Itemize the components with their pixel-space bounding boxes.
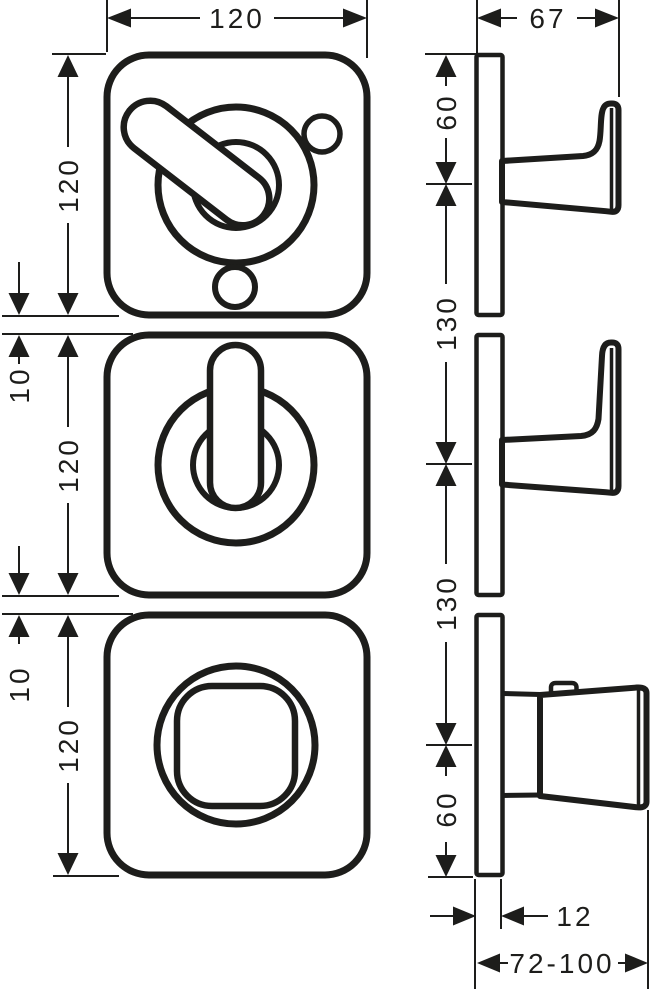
arrowhead	[625, 954, 648, 973]
arrowhead	[58, 55, 79, 77]
side-plate-2	[477, 335, 503, 595]
dim-label-offset-bottom: 60	[431, 790, 462, 827]
technical-drawing: 120 67 120 120 120 10 10 60 130 130 60 1…	[0, 0, 650, 989]
side-plate-1	[477, 55, 503, 315]
arrowhead	[58, 293, 79, 315]
arrowhead	[58, 573, 79, 595]
dim-label-installation-depth: 72-100	[509, 948, 614, 979]
arrowhead	[453, 907, 476, 926]
arrowhead	[501, 907, 524, 926]
side-plate-3	[477, 615, 503, 875]
arrowhead	[436, 162, 457, 184]
dim-label-plate1-height: 120	[53, 157, 84, 213]
arrowhead	[477, 9, 501, 28]
front-view-module-2	[107, 335, 367, 595]
front-view-module-1	[107, 55, 367, 315]
arrowhead	[9, 293, 30, 315]
dim-label-gap2: 10	[4, 665, 35, 702]
arrowhead	[58, 335, 79, 357]
drawing-canvas: 120 67 120 120 120 10 10 60 130 130 60 1…	[0, 0, 650, 989]
arrowhead	[436, 745, 457, 767]
function-dot-bottom	[215, 267, 255, 307]
lever-handle-side-2	[502, 343, 619, 493]
dim-label-plate2-height: 120	[53, 437, 84, 493]
side-view-module-1	[477, 55, 619, 315]
arrowhead	[107, 9, 131, 28]
dim-label-offset-top: 60	[431, 93, 462, 130]
dim-label-gap1: 10	[4, 366, 35, 403]
function-dot-top	[304, 116, 340, 152]
dim-label-front-width: 120	[209, 3, 265, 34]
arrowhead	[343, 9, 367, 28]
thermostat-knob-side	[540, 687, 647, 807]
lever-handle-front-2	[210, 345, 261, 508]
arrowhead	[9, 615, 30, 637]
arrowhead	[436, 464, 457, 486]
lever-handle-side-1	[502, 104, 619, 212]
dim-label-spacing-2: 130	[431, 575, 462, 631]
arrowhead	[9, 573, 30, 595]
side-view-module-3	[477, 615, 647, 875]
arrowhead	[595, 9, 619, 28]
arrowhead	[58, 615, 79, 637]
arrowhead	[9, 335, 30, 357]
dim-label-spacing-1: 130	[431, 295, 462, 351]
arrowhead	[436, 855, 457, 877]
front-view-module-3	[107, 615, 367, 875]
thermostat-knob-front	[177, 686, 295, 806]
arrowhead	[58, 853, 79, 875]
side-view-module-2	[477, 335, 619, 595]
dim-label-plate-thickness: 12	[556, 901, 593, 932]
arrowhead	[436, 442, 457, 464]
arrowhead	[436, 184, 457, 206]
dim-label-depth: 67	[529, 3, 566, 34]
arrowhead	[477, 954, 500, 973]
arrowhead	[436, 723, 457, 745]
dim-label-plate3-height: 120	[53, 717, 84, 773]
thermostat-shaft	[502, 694, 540, 796]
arrowhead	[436, 55, 457, 77]
